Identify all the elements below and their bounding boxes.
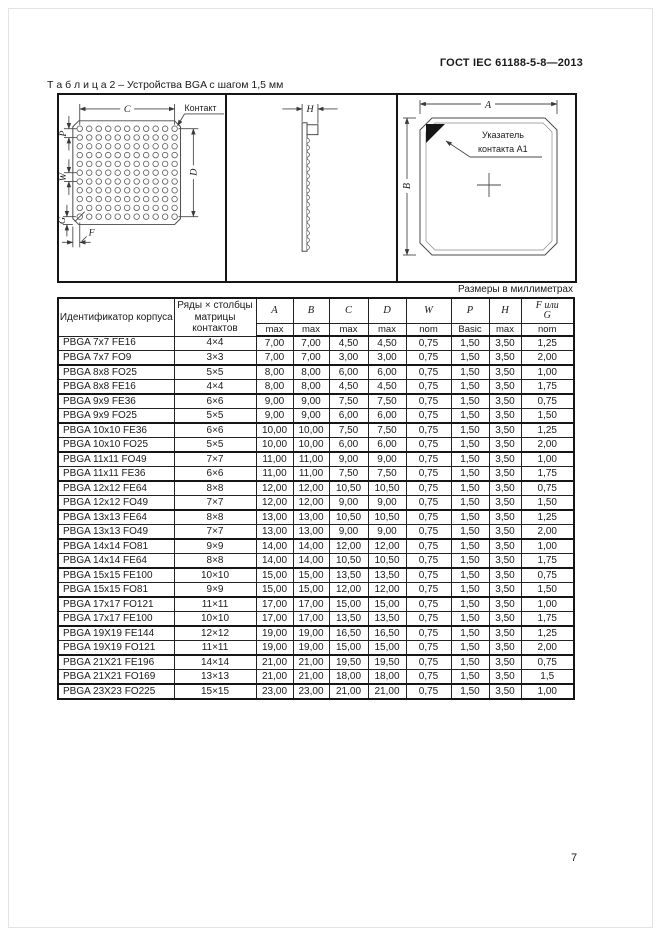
subheader-w-nom: nom xyxy=(406,324,451,337)
cell-a: 15,00 xyxy=(256,568,293,583)
cell-a: 10,00 xyxy=(256,423,293,438)
cell-h: 3,50 xyxy=(489,438,521,453)
cell-identifier: PBGA 12x12 FO49 xyxy=(58,496,174,511)
dim-label-p: P xyxy=(58,131,69,138)
cell-identifier: PBGA 13x13 FO49 xyxy=(58,525,174,540)
cell-identifier: PBGA 10x10 FO25 xyxy=(58,438,174,453)
cell-matrix: 12×12 xyxy=(174,626,256,641)
cell-p: 1,50 xyxy=(451,684,489,699)
cell-w: 0,75 xyxy=(406,554,451,569)
cell-h: 3,50 xyxy=(489,467,521,482)
cell-f-or-g: 0,75 xyxy=(521,394,574,409)
cell-d: 12,00 xyxy=(368,583,406,598)
cell-w: 0,75 xyxy=(406,626,451,641)
col-header-dim-w: W xyxy=(406,298,451,324)
cell-c: 16,50 xyxy=(329,626,368,641)
col-header-identifier: Идентификатор корпуса xyxy=(58,298,174,336)
cell-c: 10,50 xyxy=(329,554,368,569)
subheader-p-basic: Basic xyxy=(451,324,489,337)
package-body-side xyxy=(302,123,307,251)
cell-f-or-g: 1,50 xyxy=(521,496,574,511)
cell-b: 21,00 xyxy=(293,655,329,670)
cell-b: 23,00 xyxy=(293,684,329,699)
cell-d: 15,00 xyxy=(368,641,406,656)
cell-d: 13,50 xyxy=(368,612,406,627)
subheader-b-max: max xyxy=(293,324,329,337)
col-header-matrix-line2: матрицы xyxy=(175,312,256,324)
side-view-drawing: H xyxy=(227,95,396,281)
cell-w: 0,75 xyxy=(406,539,451,554)
cell-w: 0,75 xyxy=(406,568,451,583)
subheader-fg-nom: nom xyxy=(521,324,574,337)
subheader-h-max: max xyxy=(489,324,521,337)
cell-a: 17,00 xyxy=(256,612,293,627)
cell-a: 13,00 xyxy=(256,525,293,540)
cell-identifier: PBGA 19X19 FO121 xyxy=(58,641,174,656)
cell-b: 7,00 xyxy=(293,351,329,366)
cell-h: 3,50 xyxy=(489,655,521,670)
cell-p: 1,50 xyxy=(451,554,489,569)
cell-f-or-g: 1,50 xyxy=(521,583,574,598)
cell-f-or-g: 1,75 xyxy=(521,612,574,627)
cell-a: 9,00 xyxy=(256,394,293,409)
dim-label-d: D xyxy=(188,169,199,177)
cell-b: 8,00 xyxy=(293,380,329,395)
cell-b: 8,00 xyxy=(293,365,329,380)
cell-f-or-g: 1,75 xyxy=(521,380,574,395)
cell-p: 1,50 xyxy=(451,409,489,424)
contact-label: Контакт xyxy=(184,103,216,113)
cell-identifier: PBGA 11x11 FO49 xyxy=(58,452,174,467)
cell-w: 0,75 xyxy=(406,409,451,424)
cell-p: 1,50 xyxy=(451,365,489,380)
cell-identifier: PBGA 13x13 FE64 xyxy=(58,510,174,525)
cell-f-or-g: 1,25 xyxy=(521,510,574,525)
cell-c: 10,50 xyxy=(329,481,368,496)
table-caption: Т а б л и ц а 2 – Устройства BGA с шагом… xyxy=(47,79,283,91)
cell-f-or-g: 1,5 xyxy=(521,670,574,685)
cell-p: 1,50 xyxy=(451,394,489,409)
col-header-matrix: Ряды × столбцы матрицы контактов xyxy=(174,298,256,336)
cell-p: 1,50 xyxy=(451,438,489,453)
cell-w: 0,75 xyxy=(406,336,451,351)
cell-h: 3,50 xyxy=(489,496,521,511)
cell-w: 0,75 xyxy=(406,655,451,670)
cell-a: 21,00 xyxy=(256,655,293,670)
cell-matrix: 7×7 xyxy=(174,525,256,540)
cell-identifier: PBGA 17x17 FO121 xyxy=(58,597,174,612)
cell-h: 3,50 xyxy=(489,423,521,438)
col-header-dim-f-or-g: F или G xyxy=(521,298,574,324)
cell-c: 6,00 xyxy=(329,438,368,453)
cell-matrix: 7×7 xyxy=(174,452,256,467)
cell-f-or-g: 1,25 xyxy=(521,423,574,438)
cell-w: 0,75 xyxy=(406,670,451,685)
cell-d: 6,00 xyxy=(368,438,406,453)
cell-w: 0,75 xyxy=(406,380,451,395)
cell-d: 4,50 xyxy=(368,380,406,395)
cell-f-or-g: 2,00 xyxy=(521,525,574,540)
cell-c: 6,00 xyxy=(329,365,368,380)
subheader-d-max: max xyxy=(368,324,406,337)
cell-a: 7,00 xyxy=(256,336,293,351)
cell-f-or-g: 1,25 xyxy=(521,626,574,641)
cell-p: 1,50 xyxy=(451,452,489,467)
cell-h: 3,50 xyxy=(489,626,521,641)
table-row: PBGA 7x7 FO93×37,007,003,003,000,751,503… xyxy=(58,351,574,366)
cell-b: 7,00 xyxy=(293,336,329,351)
table-row: PBGA 13x13 FO497×713,0013,009,009,000,75… xyxy=(58,525,574,540)
cell-a: 23,00 xyxy=(256,684,293,699)
contact-indicator-label-2: контакта A1 xyxy=(478,144,528,154)
cell-p: 1,50 xyxy=(451,336,489,351)
cell-w: 0,75 xyxy=(406,467,451,482)
cell-w: 0,75 xyxy=(406,351,451,366)
cell-p: 1,50 xyxy=(451,467,489,482)
cell-w: 0,75 xyxy=(406,510,451,525)
cell-identifier: PBGA 14x14 FE64 xyxy=(58,554,174,569)
cell-p: 1,50 xyxy=(451,670,489,685)
table-row: PBGA 11x11 FE366×611,0011,007,507,500,75… xyxy=(58,467,574,482)
cell-f-or-g: 2,00 xyxy=(521,351,574,366)
page-number: 7 xyxy=(571,852,577,864)
cell-w: 0,75 xyxy=(406,452,451,467)
cell-c: 21,00 xyxy=(329,684,368,699)
cell-matrix: 10×10 xyxy=(174,612,256,627)
table-row: PBGA 11x11 FO497×711,0011,009,009,000,75… xyxy=(58,452,574,467)
cell-h: 3,50 xyxy=(489,409,521,424)
bottom-view-panel: C Контакт D P xyxy=(59,95,227,281)
col-header-matrix-line1: Ряды × столбцы xyxy=(175,300,256,312)
table-row: PBGA 21X21 FE19614×1421,0021,0019,5019,5… xyxy=(58,655,574,670)
cell-a: 11,00 xyxy=(256,467,293,482)
cell-p: 1,50 xyxy=(451,496,489,511)
cell-matrix: 9×9 xyxy=(174,583,256,598)
cell-b: 21,00 xyxy=(293,670,329,685)
cell-d: 4,50 xyxy=(368,336,406,351)
cell-a: 15,00 xyxy=(256,583,293,598)
cell-f-or-g: 2,00 xyxy=(521,641,574,656)
cell-b: 13,00 xyxy=(293,525,329,540)
cell-matrix: 15×15 xyxy=(174,684,256,699)
subheader-a-max: max xyxy=(256,324,293,337)
cell-f-or-g: 1,00 xyxy=(521,539,574,554)
cell-h: 3,50 xyxy=(489,510,521,525)
cell-c: 10,50 xyxy=(329,510,368,525)
cell-h: 3,50 xyxy=(489,351,521,366)
cell-a: 8,00 xyxy=(256,365,293,380)
cell-d: 19,50 xyxy=(368,655,406,670)
cell-d: 6,00 xyxy=(368,365,406,380)
cell-matrix: 3×3 xyxy=(174,351,256,366)
cell-p: 1,50 xyxy=(451,380,489,395)
cell-d: 7,50 xyxy=(368,394,406,409)
cell-b: 19,00 xyxy=(293,641,329,656)
cell-d: 18,00 xyxy=(368,670,406,685)
cell-w: 0,75 xyxy=(406,597,451,612)
cell-w: 0,75 xyxy=(406,496,451,511)
cell-c: 9,00 xyxy=(329,496,368,511)
dim-label-g: G xyxy=(57,217,68,224)
cell-a: 7,00 xyxy=(256,351,293,366)
cell-matrix: 5×5 xyxy=(174,365,256,380)
cell-d: 9,00 xyxy=(368,496,406,511)
top-view-panel: Указатель контакта A1 A B xyxy=(398,95,575,281)
cell-w: 0,75 xyxy=(406,612,451,627)
cell-p: 1,50 xyxy=(451,655,489,670)
cell-c: 13,50 xyxy=(329,568,368,583)
cell-h: 3,50 xyxy=(489,481,521,496)
cell-h: 3,50 xyxy=(489,394,521,409)
cell-c: 4,50 xyxy=(329,336,368,351)
cell-f-or-g: 2,00 xyxy=(521,438,574,453)
cell-identifier: PBGA 7x7 FE16 xyxy=(58,336,174,351)
cell-c: 9,00 xyxy=(329,452,368,467)
cell-f-or-g: 0,75 xyxy=(521,481,574,496)
cell-w: 0,75 xyxy=(406,365,451,380)
cell-c: 13,50 xyxy=(329,612,368,627)
cell-identifier: PBGA 14x14 FO81 xyxy=(58,539,174,554)
cell-identifier: PBGA 9x9 FO25 xyxy=(58,409,174,424)
cell-w: 0,75 xyxy=(406,481,451,496)
cell-identifier: PBGA 23X23 FO225 xyxy=(58,684,174,699)
table-row: PBGA 12x12 FO497×712,0012,009,009,000,75… xyxy=(58,496,574,511)
table-row: PBGA 17x17 FO12111×1117,0017,0015,0015,0… xyxy=(58,597,574,612)
cell-d: 7,50 xyxy=(368,423,406,438)
cell-matrix: 11×11 xyxy=(174,641,256,656)
cell-f-or-g: 1,25 xyxy=(521,336,574,351)
cell-identifier: PBGA 17x17 FE100 xyxy=(58,612,174,627)
cell-p: 1,50 xyxy=(451,510,489,525)
cell-b: 12,00 xyxy=(293,496,329,511)
document-page: ГОСТ IEC 61188-5-8—2013 Т а б л и ц а 2 … xyxy=(0,0,661,936)
cell-h: 3,50 xyxy=(489,365,521,380)
cell-f-or-g: 1,75 xyxy=(521,467,574,482)
cell-a: 13,00 xyxy=(256,510,293,525)
cell-f-or-g: 1,00 xyxy=(521,684,574,699)
cell-a: 21,00 xyxy=(256,670,293,685)
table-row: PBGA 8x8 FO255×58,008,006,006,000,751,50… xyxy=(58,365,574,380)
cell-b: 14,00 xyxy=(293,539,329,554)
table-row: PBGA 12x12 FE648×812,0012,0010,5010,500,… xyxy=(58,481,574,496)
cell-a: 19,00 xyxy=(256,641,293,656)
col-header-matrix-line3: контактов xyxy=(175,323,256,335)
col-header-dim-b: B xyxy=(293,298,329,324)
cell-f-or-g: 0,75 xyxy=(521,655,574,670)
subheader-c-max: max xyxy=(329,324,368,337)
cell-identifier: PBGA 9x9 FE36 xyxy=(58,394,174,409)
cell-matrix: 6×6 xyxy=(174,423,256,438)
table-row: PBGA 17x17 FE10010×1017,0017,0013,5013,5… xyxy=(58,612,574,627)
cell-d: 10,50 xyxy=(368,554,406,569)
cell-c: 7,50 xyxy=(329,467,368,482)
table-row: PBGA 19X19 FE14412×1219,0019,0016,5016,5… xyxy=(58,626,574,641)
dim-label-h: H xyxy=(305,104,314,115)
cell-b: 11,00 xyxy=(293,452,329,467)
cell-h: 3,50 xyxy=(489,539,521,554)
cell-w: 0,75 xyxy=(406,423,451,438)
dim-label-c: C xyxy=(124,104,131,115)
cell-h: 3,50 xyxy=(489,670,521,685)
cell-h: 3,50 xyxy=(489,525,521,540)
cell-c: 12,00 xyxy=(329,539,368,554)
cell-b: 17,00 xyxy=(293,597,329,612)
table-row: PBGA 21X21 FO16913×1321,0021,0018,0018,0… xyxy=(58,670,574,685)
cell-a: 12,00 xyxy=(256,481,293,496)
cell-matrix: 6×6 xyxy=(174,467,256,482)
cell-matrix: 5×5 xyxy=(174,438,256,453)
cell-d: 6,00 xyxy=(368,409,406,424)
cell-f-or-g: 0,75 xyxy=(521,568,574,583)
cell-c: 15,00 xyxy=(329,597,368,612)
cell-a: 9,00 xyxy=(256,409,293,424)
cell-c: 18,00 xyxy=(329,670,368,685)
cell-b: 10,00 xyxy=(293,423,329,438)
cell-d: 3,00 xyxy=(368,351,406,366)
cell-b: 10,00 xyxy=(293,438,329,453)
cell-matrix: 6×6 xyxy=(174,394,256,409)
cell-matrix: 9×9 xyxy=(174,539,256,554)
dim-label-b: B xyxy=(402,183,413,189)
cell-w: 0,75 xyxy=(406,641,451,656)
cell-d: 12,00 xyxy=(368,539,406,554)
dim-label-w: W xyxy=(58,172,69,181)
cell-f-or-g: 1,00 xyxy=(521,452,574,467)
table-row: PBGA 8x8 FE164×48,008,004,504,500,751,50… xyxy=(58,380,574,395)
cell-identifier: PBGA 21X21 FO169 xyxy=(58,670,174,685)
cell-d: 21,00 xyxy=(368,684,406,699)
cell-matrix: 4×4 xyxy=(174,380,256,395)
cell-p: 1,50 xyxy=(451,612,489,627)
col-header-dim-p: P xyxy=(451,298,489,324)
cell-matrix: 11×11 xyxy=(174,597,256,612)
cell-c: 7,50 xyxy=(329,423,368,438)
cell-c: 7,50 xyxy=(329,394,368,409)
cell-identifier: PBGA 10x10 FE36 xyxy=(58,423,174,438)
cell-d: 15,00 xyxy=(368,597,406,612)
cell-p: 1,50 xyxy=(451,583,489,598)
cell-h: 3,50 xyxy=(489,597,521,612)
cell-b: 9,00 xyxy=(293,394,329,409)
table-row: PBGA 7x7 FE164×47,007,004,504,500,751,50… xyxy=(58,336,574,351)
cell-matrix: 14×14 xyxy=(174,655,256,670)
cell-f-or-g: 1,00 xyxy=(521,365,574,380)
cell-b: 12,00 xyxy=(293,481,329,496)
table-row: PBGA 9x9 FO255×59,009,006,006,000,751,50… xyxy=(58,409,574,424)
cell-c: 15,00 xyxy=(329,641,368,656)
cell-a: 12,00 xyxy=(256,496,293,511)
cell-p: 1,50 xyxy=(451,539,489,554)
cell-b: 14,00 xyxy=(293,554,329,569)
table-row: PBGA 15x15 FO819×915,0015,0012,0012,000,… xyxy=(58,583,574,598)
cell-matrix: 7×7 xyxy=(174,496,256,511)
package-tab-side xyxy=(307,125,318,135)
table-row: PBGA 10x10 FO255×510,0010,006,006,000,75… xyxy=(58,438,574,453)
cell-f-or-g: 1,50 xyxy=(521,409,574,424)
cell-p: 1,50 xyxy=(451,351,489,366)
bottom-view-drawing: C Контакт D P xyxy=(59,95,225,281)
cell-b: 17,00 xyxy=(293,612,329,627)
cell-w: 0,75 xyxy=(406,583,451,598)
cell-c: 9,00 xyxy=(329,525,368,540)
cell-a: 8,00 xyxy=(256,380,293,395)
cell-p: 1,50 xyxy=(451,597,489,612)
cell-c: 12,00 xyxy=(329,583,368,598)
cell-d: 16,50 xyxy=(368,626,406,641)
cell-b: 9,00 xyxy=(293,409,329,424)
cell-identifier: PBGA 21X21 FE196 xyxy=(58,655,174,670)
cell-h: 3,50 xyxy=(489,583,521,598)
cell-f-or-g: 1,75 xyxy=(521,554,574,569)
table-row: PBGA 14x14 FO819×914,0014,0012,0012,000,… xyxy=(58,539,574,554)
figure-bga-drawings: C Контакт D P xyxy=(57,93,577,283)
dim-label-f: F xyxy=(88,227,96,238)
cell-identifier: PBGA 8x8 FO25 xyxy=(58,365,174,380)
cell-identifier: PBGA 19X19 FE144 xyxy=(58,626,174,641)
table-row: PBGA 19X19 FO12111×1119,0019,0015,0015,0… xyxy=(58,641,574,656)
units-note: Размеры в миллиметрах xyxy=(458,284,573,295)
cell-d: 13,50 xyxy=(368,568,406,583)
cell-b: 15,00 xyxy=(293,568,329,583)
cell-h: 3,50 xyxy=(489,568,521,583)
table-row: PBGA 9x9 FE366×69,009,007,507,500,751,50… xyxy=(58,394,574,409)
cell-c: 4,50 xyxy=(329,380,368,395)
cell-a: 10,00 xyxy=(256,438,293,453)
cell-b: 19,00 xyxy=(293,626,329,641)
contact-indicator-label-1: Указатель xyxy=(482,130,524,140)
side-view-panel: H xyxy=(227,95,398,281)
cell-c: 19,50 xyxy=(329,655,368,670)
cell-p: 1,50 xyxy=(451,568,489,583)
table-row: PBGA 10x10 FE366×610,0010,007,507,500,75… xyxy=(58,423,574,438)
cell-matrix: 10×10 xyxy=(174,568,256,583)
cell-identifier: PBGA 15x15 FO81 xyxy=(58,583,174,598)
cell-b: 13,00 xyxy=(293,510,329,525)
cell-w: 0,75 xyxy=(406,525,451,540)
cell-p: 1,50 xyxy=(451,626,489,641)
cell-p: 1,50 xyxy=(451,423,489,438)
cell-h: 3,50 xyxy=(489,684,521,699)
col-header-dim-c: C xyxy=(329,298,368,324)
cell-f-or-g: 1,00 xyxy=(521,597,574,612)
doc-reference: ГОСТ IEC 61188-5-8—2013 xyxy=(440,57,583,69)
cell-identifier: PBGA 12x12 FE64 xyxy=(58,481,174,496)
cell-d: 7,50 xyxy=(368,467,406,482)
cell-p: 1,50 xyxy=(451,525,489,540)
table-row: PBGA 23X23 FO22515×1523,0023,0021,0021,0… xyxy=(58,684,574,699)
spec-table-body: PBGA 7x7 FE164×47,007,004,504,500,751,50… xyxy=(58,336,574,699)
cell-p: 1,50 xyxy=(451,641,489,656)
cell-h: 3,50 xyxy=(489,380,521,395)
cell-h: 3,50 xyxy=(489,554,521,569)
cell-d: 10,50 xyxy=(368,510,406,525)
top-view-drawing: Указатель контакта A1 A B xyxy=(398,95,575,281)
col-header-dim-d: D xyxy=(368,298,406,324)
cell-a: 14,00 xyxy=(256,539,293,554)
table-row: PBGA 15x15 FE10010×1015,0015,0013,5013,5… xyxy=(58,568,574,583)
cell-a: 14,00 xyxy=(256,554,293,569)
spec-table: Идентификатор корпуса Ряды × столбцы мат… xyxy=(57,297,575,700)
cell-identifier: PBGA 7x7 FO9 xyxy=(58,351,174,366)
cell-matrix: 8×8 xyxy=(174,510,256,525)
cell-identifier: PBGA 8x8 FE16 xyxy=(58,380,174,395)
cell-matrix: 13×13 xyxy=(174,670,256,685)
cell-a: 19,00 xyxy=(256,626,293,641)
cell-matrix: 8×8 xyxy=(174,554,256,569)
cell-a: 17,00 xyxy=(256,597,293,612)
cell-b: 11,00 xyxy=(293,467,329,482)
cell-identifier: PBGA 15x15 FE100 xyxy=(58,568,174,583)
